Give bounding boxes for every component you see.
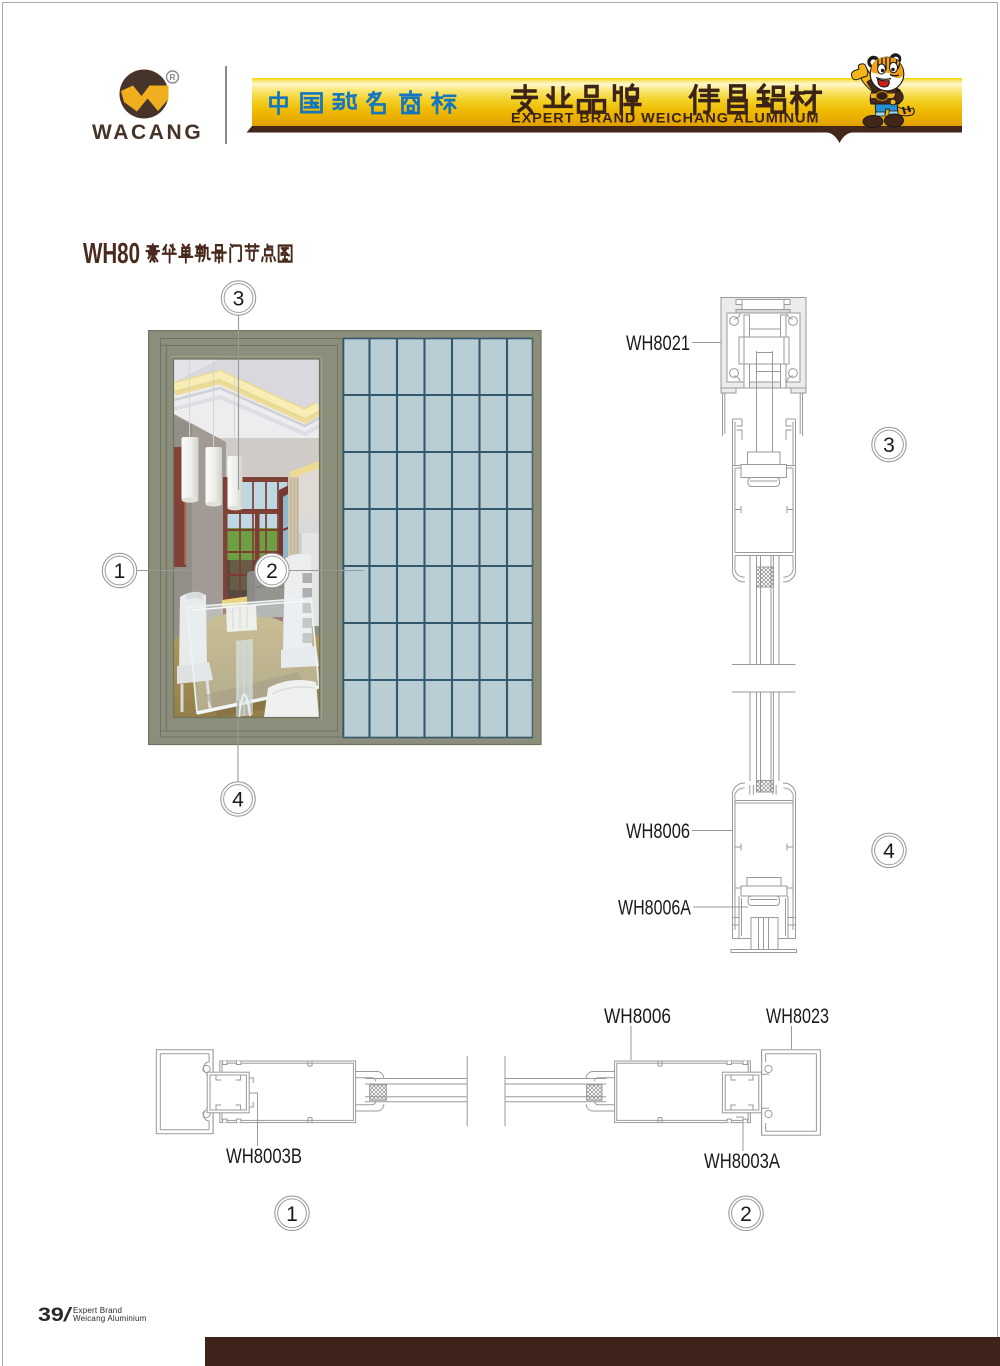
svg-text:WH8006: WH8006 [626, 820, 690, 843]
svg-text:WH8006A: WH8006A [618, 897, 691, 920]
svg-text:3: 3 [233, 288, 245, 311]
svg-text:1: 1 [286, 1203, 298, 1226]
svg-text:WH8006: WH8006 [604, 1005, 671, 1028]
svg-text:R: R [169, 72, 175, 82]
svg-text:4: 4 [232, 789, 244, 812]
svg-text:2: 2 [266, 560, 278, 583]
svg-text:3: 3 [883, 434, 895, 457]
svg-text:2: 2 [740, 1203, 752, 1226]
svg-text:WH8023: WH8023 [766, 1005, 829, 1028]
svg-text:WH8003B: WH8003B [226, 1145, 302, 1168]
svg-text:4: 4 [883, 840, 895, 863]
svg-text:WH8021: WH8021 [626, 332, 690, 355]
svg-text:1: 1 [114, 560, 126, 583]
svg-text:WH8003A: WH8003A [704, 1150, 780, 1173]
